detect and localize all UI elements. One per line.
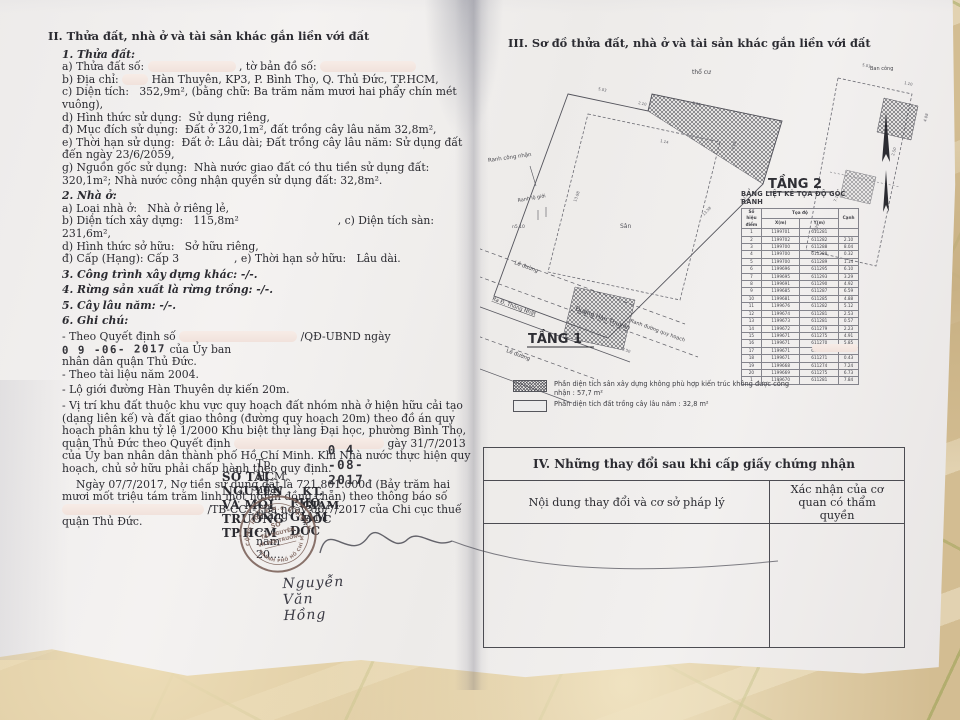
item-3-line: 3. Công trình xây dựng khác: -/-. — [48, 269, 472, 282]
x-coordinate: 1199695 — [761, 273, 800, 280]
y-coordinate: 611281 — [800, 318, 839, 325]
col-x-header: X(m) — [761, 219, 800, 229]
y-coordinate: 611279 — [800, 325, 839, 332]
hatch-swatch-icon — [513, 380, 547, 392]
edge-length: 6.73 — [839, 369, 859, 376]
x-coordinate: 1199700 — [761, 251, 800, 258]
x-coordinate: 1199674 — [761, 310, 800, 317]
changes-table: IV. Những thay đổi sau khi cấp giấy chứn… — [483, 447, 905, 648]
point-number: 2 — [742, 236, 762, 243]
x-coordinate: 1199691 — [761, 281, 800, 288]
col-point-line2: điểm — [746, 222, 758, 227]
build-area-value: 115,8m² — [193, 214, 238, 227]
grade-value: đ) Cấp (Hạng): Cấp 3 — [62, 252, 179, 265]
north-arrow-lower — [883, 170, 889, 212]
y-coordinate: 611282 — [800, 236, 839, 243]
coord-table-row: 18 1199671 611271 0.43 — [742, 355, 859, 362]
address-value: Hàn Thuyên, KP3, P. Bình Thọ, Q. Thủ Đức… — [152, 73, 439, 86]
col-edge-header: Cạnh — [839, 209, 859, 229]
section-ii-title: II. Thửa đất, nhà ở và tài sản khác gắn … — [48, 30, 472, 43]
col-authority-confirm: Xác nhận của cơ quan có thẩm quyền — [770, 481, 905, 524]
y-coordinate: 611281 — [800, 310, 839, 317]
section-iv-title: IV. Những thay đổi sau khi cấp giấy chứn… — [484, 448, 905, 481]
date-stamp-09-06-2017: 0 9 -06- 2017 — [62, 343, 166, 357]
date-stamp-04-08-2017: 0 4 -08- 2017 — [328, 442, 365, 488]
note-1-text3: của Ủy ban — [169, 343, 231, 356]
y-coordinate: 611275 — [800, 332, 839, 339]
edge-length: 2.10 — [839, 236, 859, 243]
redaction-decision-number — [179, 331, 297, 342]
coord-table-row: 15 1199671 611275 4.91 — [742, 332, 859, 339]
x-coordinate: 1199671 — [761, 332, 800, 339]
x-coordinate: 1199700 — [761, 244, 800, 251]
edge-length: 4.91 — [839, 332, 859, 339]
point-number: 14 — [742, 325, 762, 332]
edge-length: 7.84 — [839, 377, 859, 384]
x-coordinate: 1199685 — [761, 288, 800, 295]
leader-line — [530, 166, 536, 186]
use-purpose-label: đ) Mục đích sử dụng: — [62, 123, 178, 136]
address-label: b) Địa chỉ: — [62, 73, 119, 86]
section-ii-text-block: II. Thửa đất, nhà ở và tài sản khác gắn … — [48, 30, 472, 529]
coord-table-row: 7 1199695 611293 3.29 — [742, 273, 859, 280]
coord-table-row: 1 1199701 611281 — [742, 229, 859, 236]
y-coordinate: 611290 — [800, 281, 839, 288]
label-ra-d-thong-nhat: Ra Đ. Thống Nhất — [491, 295, 537, 317]
point-number: 19 — [742, 362, 762, 369]
house-type-label: a) Loại nhà ở: — [62, 202, 137, 215]
point-number: 12 — [742, 310, 762, 317]
own-term-label: , e) Thời hạn sở hữu: — [234, 252, 346, 265]
note-1-text2: /QĐ-UBND ngày — [301, 330, 391, 343]
edge-length: 3.29 — [839, 273, 859, 280]
point-number: 6 — [742, 266, 762, 273]
coord-table-row: 3 1199700 611288 8.04 — [742, 244, 859, 251]
x-coordinate: 1199672 — [761, 325, 800, 332]
changes-table-empty-row — [484, 524, 905, 648]
point-number: 18 — [742, 355, 762, 362]
label-ban-cong: Ban công — [870, 65, 893, 72]
x-coordinate: 1199671 — [761, 347, 800, 354]
y-coordinate: 611285 — [800, 295, 839, 302]
dimension-label: 2.10 — [638, 100, 648, 107]
edge-length: 0.57 — [839, 318, 859, 325]
x-coordinate: 1199702 — [761, 236, 800, 243]
edge-length: 0.32 — [839, 251, 859, 258]
empty-cell-confirm — [770, 524, 905, 648]
col-point-header: Số hiệuđiểm — [742, 209, 762, 229]
edge-length: 1.14 — [839, 258, 859, 265]
y-coordinate: 611281 — [800, 229, 839, 236]
section-iii-title: III. Sơ đồ thửa đất, nhà ở và tài sản kh… — [508, 36, 938, 50]
dimension-label: 4.08 — [922, 112, 929, 122]
point-number: 20 — [742, 369, 762, 376]
item-6-heading: 6. Ghi chú: — [48, 315, 472, 328]
edge-length: 6.10 — [839, 266, 859, 273]
edge-length: 5.12 — [839, 303, 859, 310]
dimension-label: 1.14 — [660, 138, 670, 145]
item-5-line: 5. Cây lâu năm: -/-. — [48, 300, 472, 313]
line-grade: đ) Cấp (Hạng): Cấp 3 , e) Thời hạn sở hữ… — [48, 253, 472, 266]
y-coordinate: 611289 — [800, 258, 839, 265]
line-house-area: b) Diện tích xây dựng: 115,8m² , c) Diện… — [48, 215, 472, 240]
coord-table-row: 5 1199700 611289 1.14 — [742, 258, 859, 265]
dimension-label: 13.58 — [701, 205, 712, 217]
use-form-label: d) Hình thức sử dụng: — [62, 111, 182, 124]
coord-table-row: 10 1199681 611285 4.88 — [742, 295, 859, 302]
note-3-line: - Lộ giới đường Hàn Thuyên dự kiến 20m. — [48, 384, 472, 397]
use-origin-label: g) Nguồn gốc sử dụng: — [62, 161, 187, 174]
label-le-duong-1: Lề đường — [513, 258, 539, 274]
y-coordinate: 611274 — [800, 362, 839, 369]
coord-table-row: 9 1199685 611287 6.59 — [742, 288, 859, 295]
redaction-parcel-number — [148, 61, 236, 72]
y-coordinate: 611293 — [800, 273, 839, 280]
coord-table-row: 8 1199691 611290 4.92 — [742, 281, 859, 288]
point-number: 5 — [742, 258, 762, 265]
legend-row-1: Phần diện tích sân xây dựng không phù hợ… — [513, 380, 813, 397]
point-number: 16 — [742, 340, 762, 347]
coord-table-row: 12 1199674 611281 2.53 — [742, 310, 859, 317]
coord-table-title: BẢNG LIỆT KÊ TỌA ĐỘ GÓC RANH — [741, 190, 863, 206]
signature-squiggle — [320, 533, 452, 553]
dimension-label: 5.03 — [598, 86, 608, 93]
redaction-address-number — [122, 74, 148, 85]
legend-text-2: Phần diện tích đất trồng cây lâu năm : 3… — [554, 400, 804, 409]
boundary-coordinates-panel: BẢNG LIỆT KÊ TỌA ĐỘ GÓC RANH Số hiệuđiểm… — [741, 190, 863, 385]
line-use-term: e) Thời hạn sử dụng: Đất ở: Lâu dài; Đất… — [48, 137, 472, 162]
edge-length: 7.24 — [839, 362, 859, 369]
redaction-notice-number — [62, 504, 204, 515]
y-coordinate: 611295 — [800, 266, 839, 273]
col-point-line1: Số hiệu — [746, 209, 756, 220]
coord-table-row: 14 1199672 611279 2.23 — [742, 325, 859, 332]
y-coordinate: 611287 — [800, 288, 839, 295]
edge-length: 0.43 — [839, 355, 859, 362]
dimension-label: 2.50 — [622, 346, 632, 354]
point-number: 17 — [742, 347, 762, 354]
tang2-hatch-balcony — [877, 98, 918, 140]
floor-area-value: 231,6m², — [62, 227, 111, 240]
label-san: Sân — [620, 223, 631, 230]
label-ranh-cong-nhan-group: Ranh công nhận — [488, 151, 532, 164]
area-label: c) Diện tích: — [62, 85, 129, 98]
x-coordinate: 1199668 — [761, 362, 800, 369]
edge-length: 2.23 — [839, 325, 859, 332]
section-iv-panel: IV. Những thay đổi sau khi cấp giấy chứn… — [483, 447, 905, 648]
coord-table-row: 2 1199702 611282 2.10 — [742, 236, 859, 243]
note-1-text: - Theo Quyết định số — [62, 330, 176, 343]
y-coordinate: 611288 — [800, 251, 839, 258]
redaction-under-table — [812, 344, 858, 352]
ownership-value: Sở hữu riêng, — [185, 240, 259, 253]
point-number: 7 — [742, 273, 762, 280]
own-term-value: Lâu dài. — [356, 252, 400, 265]
point-number: 1 — [742, 229, 762, 236]
coord-table-body: 1 1199701 611281 2 1199702 611282 2.10 3… — [742, 229, 859, 385]
line-use-origin: g) Nguồn gốc sử dụng: Nhà nước giao đất … — [48, 162, 472, 187]
coord-table-row: 6 1199696 611295 6.10 — [742, 266, 859, 273]
legend-row-2: Phần diện tích đất trồng cây lâu năm : 3… — [513, 400, 813, 412]
edge-length: 8.04 — [839, 244, 859, 251]
note-1-line2: nhân dân quận Thủ Đức. — [48, 356, 472, 369]
use-term-label: e) Thời hạn sử dụng: — [62, 136, 175, 149]
parcel-number-label: a) Thửa đất số: — [62, 60, 144, 73]
coord-table-row: 11 1199676 611282 5.12 — [742, 303, 859, 310]
plan-legend: Phần diện tích sân xây dựng không phù hợ… — [513, 380, 813, 415]
x-coordinate: 1199696 — [761, 266, 800, 273]
edge-length — [839, 229, 859, 236]
x-coordinate: 1199673 — [761, 318, 800, 325]
edge-length: 2.53 — [839, 310, 859, 317]
x-coordinate: 1199671 — [761, 340, 800, 347]
y-coordinate: 611275 — [800, 369, 839, 376]
point-number: 8 — [742, 281, 762, 288]
note-1-line: - Theo Quyết định số /QĐ-UBND ngày 0 9 -… — [48, 331, 472, 356]
coord-table-row: 13 1199673 611281 0.57 — [742, 318, 859, 325]
photo-of-land-certificate: { "colors": { "stamp": "#7a6058", "ink":… — [0, 0, 960, 720]
coord-table: Số hiệuđiểm Tọa độ Cạnh X(m) Y(m) 1 1199… — [741, 208, 859, 385]
use-purpose-value: Đất ở 320,1m², đất trồng cây lâu năm 32,… — [185, 123, 436, 136]
house-type-value: Nhà ở riêng lẻ, — [147, 202, 229, 215]
label-tho-cu: thổ cư — [692, 69, 712, 76]
coord-table-row: 20 1199669 611275 6.73 — [742, 369, 859, 376]
legend-text-1: Phần diện tích sân xây dựng không phù hợ… — [554, 380, 804, 397]
y-coordinate: 611282 — [800, 303, 839, 310]
build-area-label: b) Diện tích xây dựng: — [62, 214, 183, 227]
x-coordinate: 1199676 — [761, 303, 800, 310]
label-ns10: n5.10 — [512, 224, 525, 230]
coord-table-row: 4 1199700 611288 0.32 — [742, 251, 859, 258]
plain-swatch-icon — [513, 400, 547, 412]
point-number: 13 — [742, 318, 762, 325]
coord-table-row: 19 1199668 611274 7.24 — [742, 362, 859, 369]
empty-cell-content — [484, 524, 770, 648]
dimension-label: 13.98 — [572, 190, 581, 202]
item-4-line: 4. Rừng sản xuất là rừng trồng: -/-. — [48, 284, 472, 297]
point-number: 10 — [742, 295, 762, 302]
house-footprint-dashed — [548, 114, 720, 300]
floor-area-label: , c) Diện tích sàn: — [338, 214, 434, 227]
col-coords-header: Tọa độ — [761, 209, 838, 219]
point-number: 3 — [742, 244, 762, 251]
y-coordinate: 611271 — [800, 355, 839, 362]
stamp-center-line1: SỞ — [269, 518, 282, 530]
ownership-label: d) Hình thức sở hữu: — [62, 240, 174, 253]
x-coordinate: 1199681 — [761, 295, 800, 302]
x-coordinate: 1199701 — [761, 229, 800, 236]
map-number-label: , tờ bản đồ số: — [239, 60, 317, 73]
redaction-map-number — [320, 61, 416, 72]
point-number: 4 — [742, 251, 762, 258]
x-coordinate: 1199669 — [761, 369, 800, 376]
edge-length: 4.92 — [839, 281, 859, 288]
point-number: 15 — [742, 332, 762, 339]
y-coordinate: 611288 — [800, 244, 839, 251]
edge-length: 6.59 — [839, 288, 859, 295]
dimension-label: 1.10 — [904, 80, 914, 87]
edge-length: 4.88 — [839, 295, 859, 302]
point-number: 9 — [742, 288, 762, 295]
point-number: 11 — [742, 303, 762, 310]
x-coordinate: 1199700 — [761, 258, 800, 265]
dimension-label: 2.50 — [890, 146, 897, 156]
x-coordinate: 1199671 — [761, 355, 800, 362]
label-ranh-cong-nhan: Ranh công nhận — [488, 151, 532, 164]
line-area: c) Diện tích: 352,9m², (bằng chữ: Ba tră… — [48, 86, 472, 111]
col-change-content: Nội dung thay đổi và cơ sở pháp lý — [484, 481, 770, 524]
dimension-label: 5.03 — [862, 62, 872, 69]
note-2-line: - Theo tài liệu năm 2004. — [48, 369, 472, 382]
use-form-value: Sử dụng riêng, — [189, 111, 270, 124]
col-y-header: Y(m) — [800, 219, 839, 229]
label-tang-1: TẦNG 1 — [528, 329, 582, 347]
